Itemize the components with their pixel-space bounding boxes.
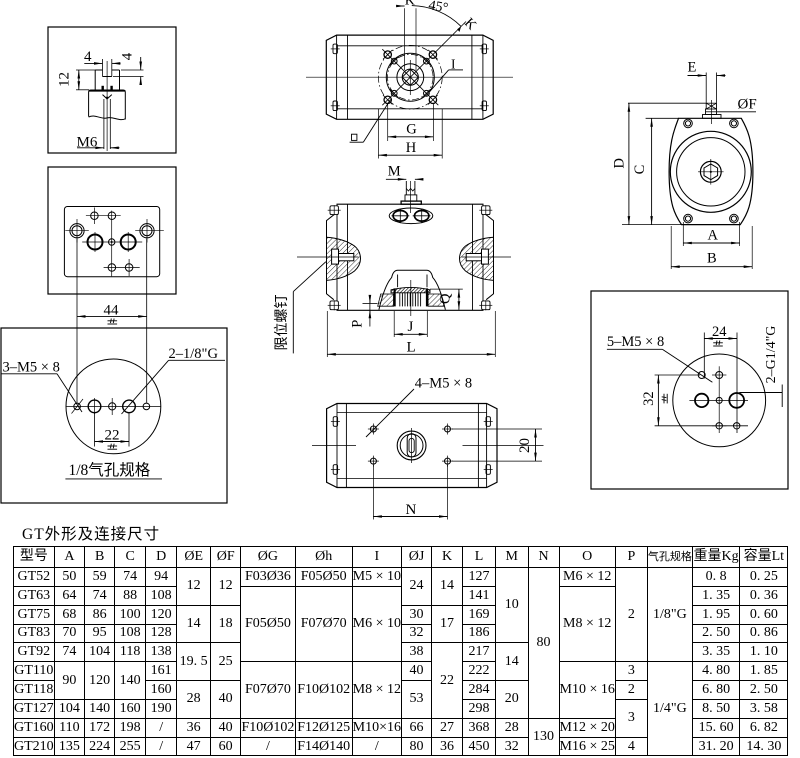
svg-text:Q: Q (438, 293, 454, 304)
svg-text:4–M5 × 8: 4–M5 × 8 (415, 376, 472, 392)
svg-text:D: D (612, 158, 628, 168)
svg-text:2–G1/4"G: 2–G1/4"G (764, 326, 779, 384)
svg-text:K: K (405, 0, 415, 9)
svg-text:12: 12 (57, 72, 73, 87)
svg-text:3–M5 × 8: 3–M5 × 8 (3, 360, 60, 376)
svg-text:4: 4 (120, 52, 136, 60)
svg-text:24: 24 (712, 324, 727, 340)
svg-text:20: 20 (517, 438, 533, 453)
svg-text:C: C (632, 165, 648, 175)
svg-text:J: J (408, 319, 414, 335)
svg-text:N: N (406, 502, 417, 518)
svg-text:I: I (451, 56, 456, 71)
svg-text:限位螺钉: 限位螺钉 (274, 295, 290, 351)
svg-text:M: M (388, 164, 401, 180)
svg-text:A: A (708, 228, 719, 244)
svg-text:B: B (707, 251, 717, 267)
svg-text:P: P (350, 320, 366, 328)
svg-text:E: E (688, 60, 697, 76)
svg-text:ØF: ØF (738, 97, 757, 113)
svg-text:4: 4 (84, 49, 92, 65)
svg-text:5–M5 × 8: 5–M5 × 8 (607, 334, 664, 350)
svg-text:1/8气孔规格: 1/8气孔规格 (69, 461, 151, 479)
svg-text:H: H (406, 140, 417, 156)
svg-text:2–1/8"G: 2–1/8"G (169, 346, 219, 362)
svg-text:L: L (407, 340, 416, 356)
svg-text:G: G (406, 122, 417, 138)
svg-text:32: 32 (641, 391, 657, 406)
